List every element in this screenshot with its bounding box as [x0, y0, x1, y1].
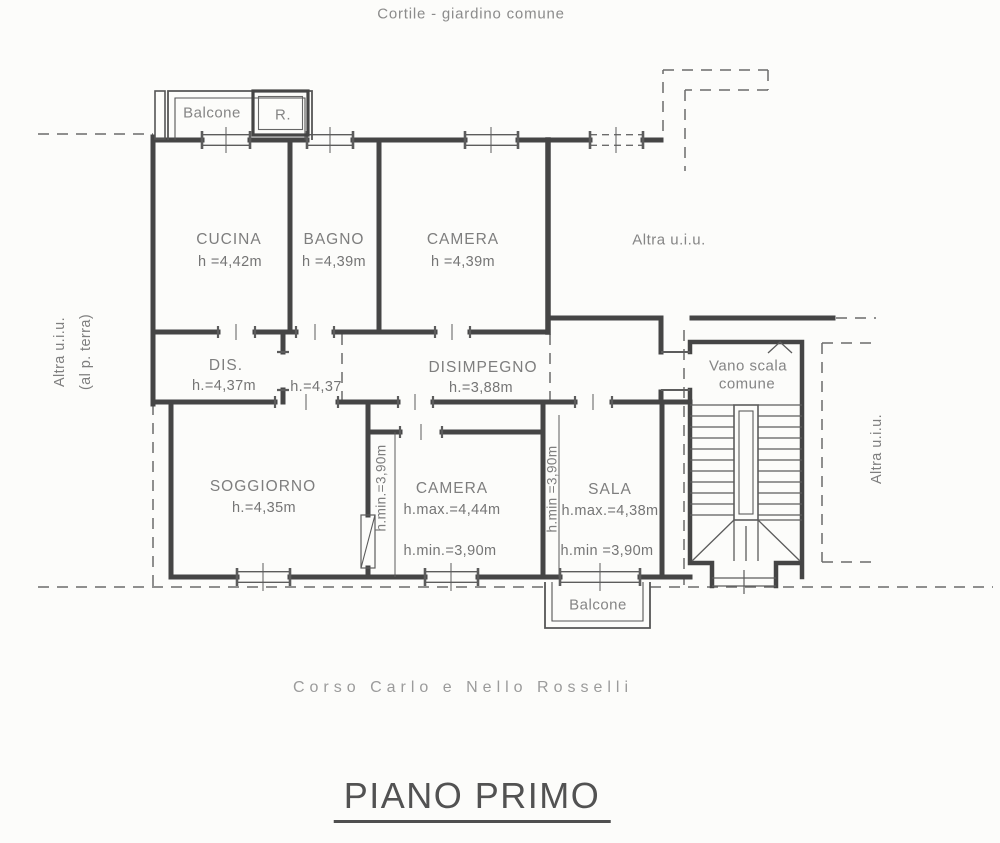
courtyard-label: Cortile - giardino comune [377, 6, 565, 23]
room-camera-nord-height: h =4,39m [431, 254, 495, 270]
room-disimpegno-height: h.=3,88m [449, 380, 513, 396]
room-sala-name: SALA [588, 481, 632, 499]
room-camera-sud-hmin: h.min.=3,90m [403, 543, 496, 559]
stairwell-label-line1: Vano scala [709, 358, 787, 375]
street-name-label: Corso Carlo e Nello Rosselli [293, 679, 633, 697]
room-cucina-height: h =4,42m [198, 254, 262, 270]
room-camera-nord-name: CAMERA [427, 231, 499, 249]
room-dis-name: DIS. [209, 357, 243, 375]
balcony-top-label: Balcone [183, 105, 241, 122]
balcony-bottom-label: Balcone [569, 597, 627, 614]
floor-plan-page: Cortile - giardino comune Balcone R. CUC… [0, 0, 1000, 843]
room-sala-hmax: h.max.=4,38m [561, 503, 658, 519]
room-soggiorno-name: SOGGIORNO [210, 478, 316, 496]
room-bagno-height: h =4,39m [302, 254, 366, 270]
room-camera-sud-name: CAMERA [416, 480, 488, 498]
room-bagno-name: BAGNO [304, 231, 365, 249]
page-title: PIANO PRIMO [334, 775, 611, 823]
r-box-label: R. [275, 107, 291, 124]
stairwell-label-line2: comune [719, 376, 775, 393]
room-cucina-name: CUCINA [196, 231, 261, 249]
adjacent-unit-right-label: Altra u.i.u. [869, 414, 885, 484]
windows [202, 127, 643, 591]
room-soggiorno-height: h.=4,35m [232, 500, 296, 516]
room-camera-sud-hmin-side: h.min.=3,90m [374, 445, 389, 532]
room-sala-hmin: h.min =3,90m [560, 543, 653, 559]
room-disimpegno-name: DISIMPEGNO [428, 359, 537, 377]
room-sala-hmin-side: h.min =3,90m [545, 446, 560, 533]
adjacent-unit-left-label-line2: (al p. terra) [78, 314, 94, 390]
floor-plan-drawing [0, 0, 1000, 843]
vestibule-height: h.=4,37 [290, 379, 342, 395]
boundary-dashed-lines [38, 70, 993, 587]
adjacent-unit-top-label: Altra u.i.u. [632, 232, 706, 249]
adjacent-unit-left-label-line1: Altra u.i.u. [52, 317, 68, 387]
room-camera-sud-hmax: h.max.=4,44m [403, 502, 500, 518]
room-dis-height: h.=4,37m [192, 378, 256, 394]
